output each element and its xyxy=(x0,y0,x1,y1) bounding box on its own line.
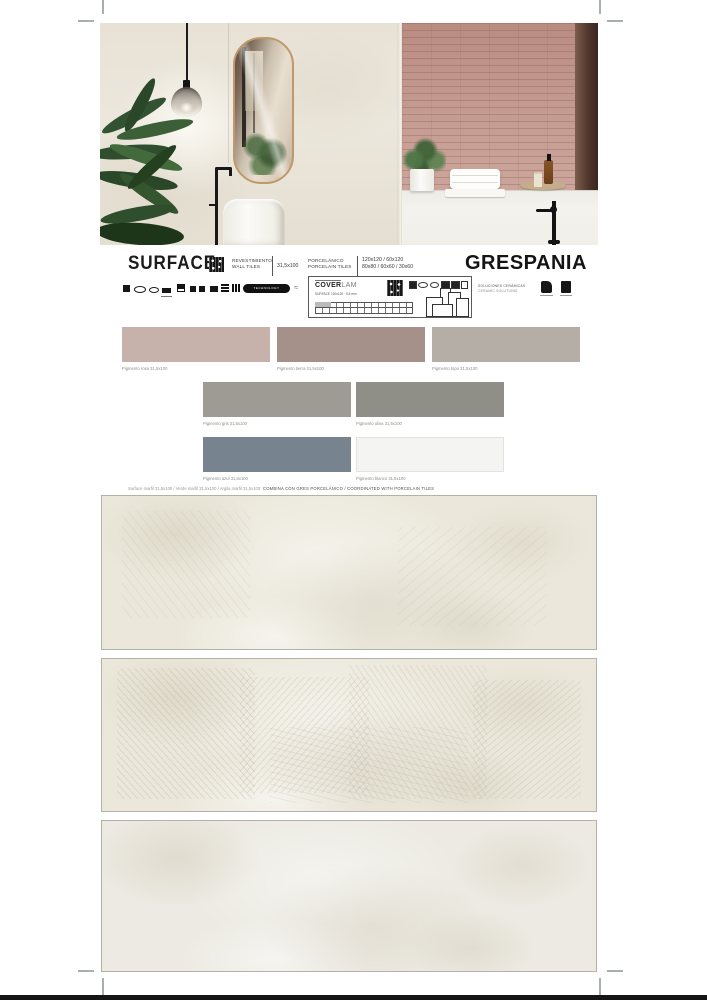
mirror xyxy=(233,37,294,184)
towel-flat xyxy=(445,189,505,197)
material-en: PORCELAIN TILES xyxy=(308,264,352,270)
brand-logo: GRESPANIA xyxy=(465,252,587,275)
color-swatch xyxy=(122,327,270,362)
shower-foot xyxy=(548,240,560,244)
category-label: REVESTIMIENTO WALL TILES xyxy=(232,258,272,270)
crop-mark xyxy=(599,0,601,14)
coverlam-rule xyxy=(315,280,341,281)
dark-wall-edge xyxy=(575,23,598,191)
feature-icon-bar xyxy=(162,288,171,293)
shelf-vase xyxy=(410,169,434,191)
towel-fold-line xyxy=(452,182,498,183)
feature-icon xyxy=(199,284,207,292)
certification-icon xyxy=(561,281,571,293)
mini-icon xyxy=(409,281,417,289)
crop-mark xyxy=(78,970,94,972)
divider xyxy=(272,256,273,276)
color-swatch xyxy=(356,382,504,417)
wall-corner xyxy=(397,23,401,245)
faucet-handle xyxy=(209,204,216,206)
mini-icon xyxy=(451,281,460,289)
page-bottom-edge xyxy=(0,995,707,1000)
crop-mark xyxy=(607,970,623,972)
coverlam-info-box: COVERLAM SURFACE 120x120 · 5,6 mm xyxy=(308,276,472,318)
cream-bottle xyxy=(534,172,542,187)
color-swatch xyxy=(203,382,351,417)
tile-panel-plain xyxy=(101,495,597,650)
crop-mark xyxy=(102,0,104,14)
category-en: WALL TILES xyxy=(232,264,272,270)
ledge-counter xyxy=(402,190,598,245)
mini-icon xyxy=(418,282,428,288)
color-swatch xyxy=(203,437,351,472)
mini-icon xyxy=(430,282,439,288)
tile-texture-overlay xyxy=(117,668,255,799)
swatch-label: Pigmento azul 31,5x100 xyxy=(203,476,248,481)
color-swatch xyxy=(277,327,425,362)
divider xyxy=(357,256,358,276)
crop-mark xyxy=(78,20,94,22)
shower-knob xyxy=(550,206,557,213)
qr-code-icon xyxy=(387,280,403,296)
feature-icon-stripes xyxy=(232,284,240,292)
swatch-label: Pigmento blanco 31,5x100 xyxy=(356,476,406,481)
wooden-tray xyxy=(520,181,566,190)
mini-icon xyxy=(461,281,468,289)
bottle-cap xyxy=(547,154,551,161)
pedestal-basin xyxy=(223,199,285,245)
tile-panel-decor xyxy=(101,658,597,812)
size-table-header xyxy=(315,302,331,307)
coverlam-logo-light: LAM xyxy=(341,282,356,289)
pendant-cord xyxy=(186,23,188,83)
tile-format-diagram xyxy=(432,304,453,317)
feature-caption xyxy=(161,296,172,297)
towel-stack xyxy=(450,169,500,189)
collection-title: SURFACE xyxy=(128,253,216,275)
mirror-highlight xyxy=(235,39,292,182)
certification-caption xyxy=(560,295,572,296)
tile-format-diagram xyxy=(456,298,469,317)
tile-texture-overlay xyxy=(473,680,582,799)
qr-code-icon xyxy=(209,257,224,272)
certification-icon xyxy=(541,281,552,293)
feature-icon xyxy=(210,284,218,292)
color-swatch xyxy=(356,437,504,472)
swatch-label: Pigmento tierra 31,5x100 xyxy=(277,366,324,371)
feature-icon-stripes xyxy=(221,284,229,292)
catalog-page: SURFACE REVESTIMIENTO WALL TILES 31,5x10… xyxy=(0,0,707,1000)
coverlam-logo-bold: COVER xyxy=(315,282,341,289)
tile-texture-overlay xyxy=(398,527,546,626)
feature-icon-square xyxy=(123,285,130,292)
feature-icon xyxy=(177,284,185,292)
porcelain-sizes-1: 120x120 / 60x120 xyxy=(362,257,413,264)
tile-panel-light xyxy=(101,820,597,972)
swatch-label: Pigmento gris 31,5x100 xyxy=(203,421,247,426)
feature-icon-wave: ≈ xyxy=(294,283,298,292)
color-swatch xyxy=(432,327,580,362)
tile-texture-overlay xyxy=(122,511,250,618)
porcelain-sizes: 120x120 / 60x120 80x80 / 60x60 / 30x60 xyxy=(362,257,413,272)
coordination-caption: COMBINA CON GRES PORCELÁNICO / COORDINAT… xyxy=(263,486,434,491)
wall-size: 31,5x100 xyxy=(277,263,298,270)
material-label: PORCELÁNICO PORCELAIN TILES xyxy=(308,258,352,270)
lamp-glow xyxy=(179,103,194,112)
feature-icon-oval xyxy=(134,286,146,293)
pendant-lamp xyxy=(171,87,202,117)
tile-texture-overlay xyxy=(270,727,468,803)
amber-bottle xyxy=(544,160,553,184)
tile-joint-line xyxy=(228,23,229,163)
technology-badge: TECHNOLOGY xyxy=(243,284,290,293)
swatch-label: Pigmento oliva 31,5x100 xyxy=(356,421,402,426)
feature-icon-oval xyxy=(149,287,159,293)
coverlam-subtitle: SURFACE 120x120 · 5,6 mm xyxy=(315,292,357,296)
certification-caption xyxy=(540,295,553,296)
plant xyxy=(100,103,196,245)
swatch-label: Pigmento topo 31,5x100 xyxy=(432,366,477,371)
feature-icon xyxy=(188,284,196,292)
hero-photo xyxy=(100,23,598,245)
towel-fold-line xyxy=(452,175,498,176)
brand-tagline-1: SOLUCIONES CERÁMICAS xyxy=(478,284,525,288)
crop-mark xyxy=(607,20,623,22)
plant-leaf xyxy=(100,220,185,245)
brand-tagline-2: CERAMIC SOLUTIONS xyxy=(478,289,518,293)
coverlam-logo: COVERLAM xyxy=(315,282,357,289)
porcelain-sizes-2: 80x80 / 60x60 / 30x60 xyxy=(362,264,413,271)
faucet-spout xyxy=(229,169,232,176)
swatch-label: Pigmento rosa 31,5x100 xyxy=(122,366,167,371)
faucet-column xyxy=(215,169,218,245)
combination-caption: Surface marfil 31,5x100 / Verde marfil 3… xyxy=(128,486,260,491)
